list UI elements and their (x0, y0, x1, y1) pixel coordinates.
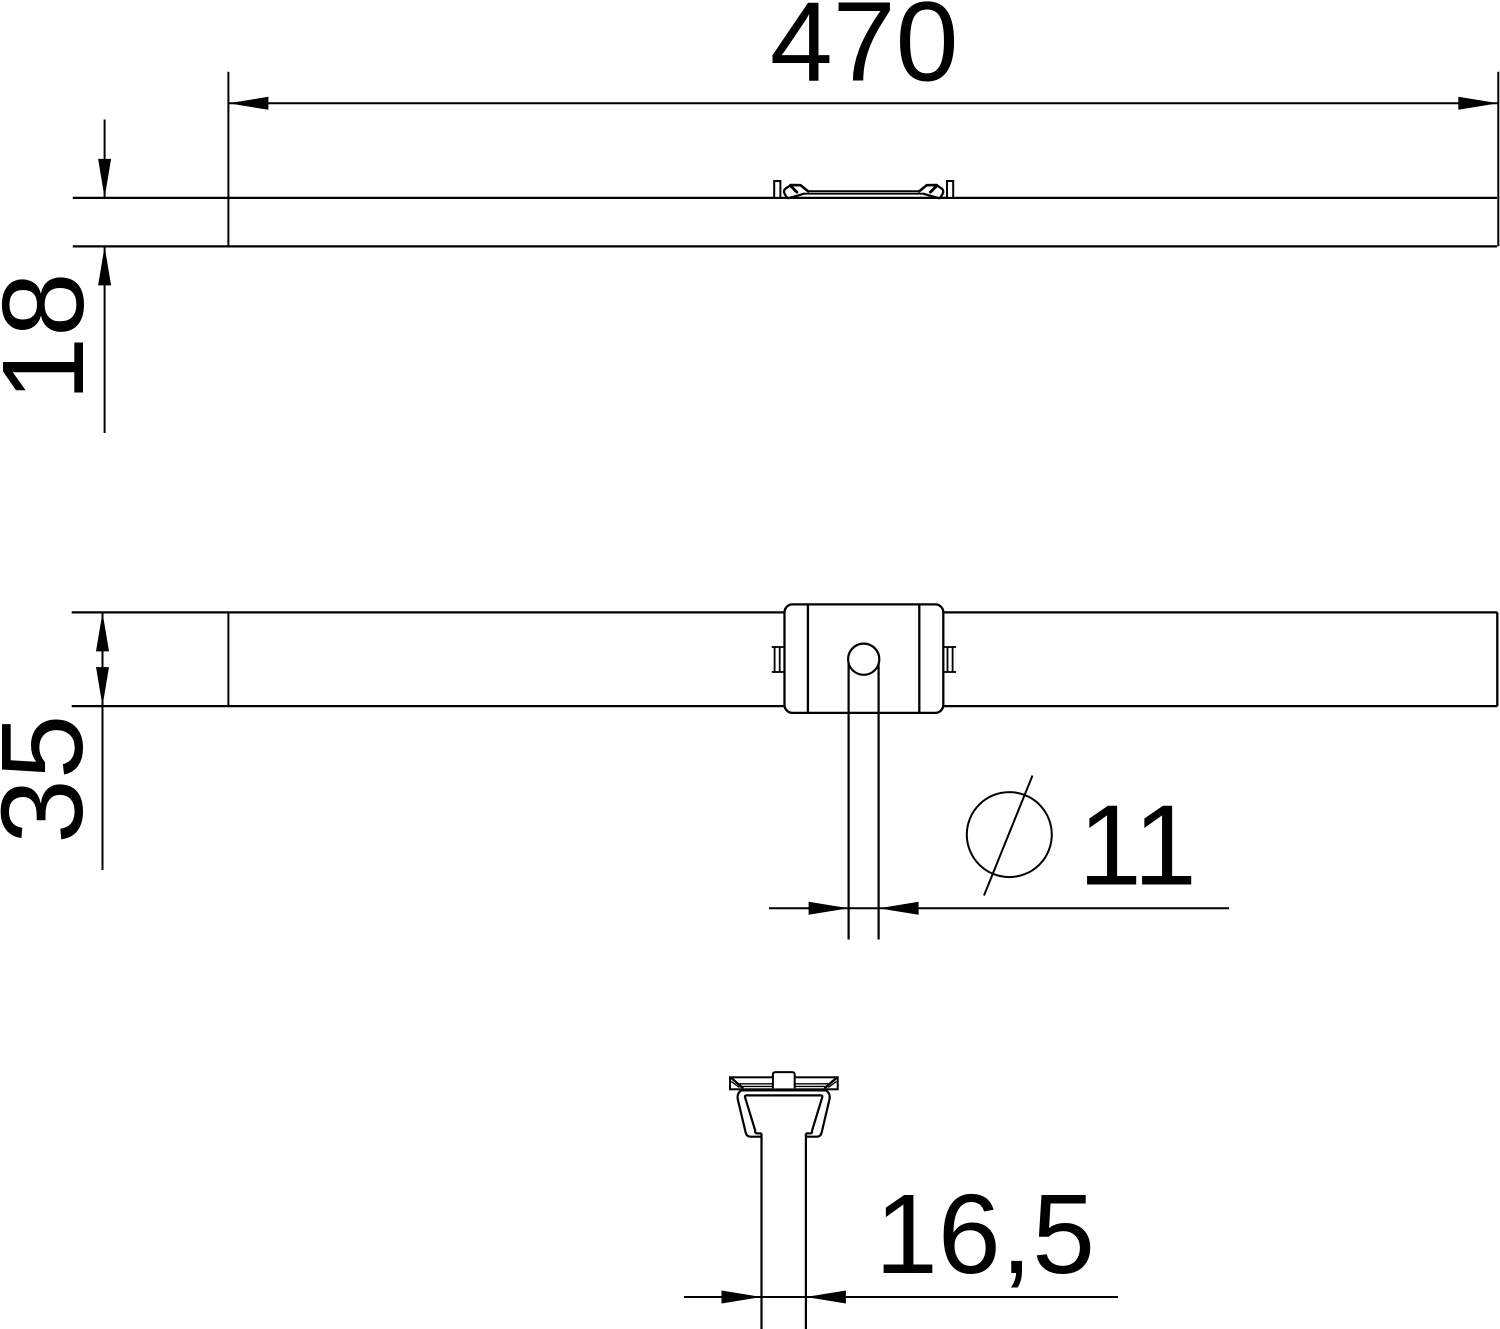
svg-text:16,5: 16,5 (875, 1171, 1095, 1297)
svg-text:18: 18 (0, 272, 108, 401)
svg-text:470: 470 (770, 0, 959, 105)
svg-text:35: 35 (0, 715, 107, 844)
svg-text:11: 11 (1078, 783, 1196, 910)
